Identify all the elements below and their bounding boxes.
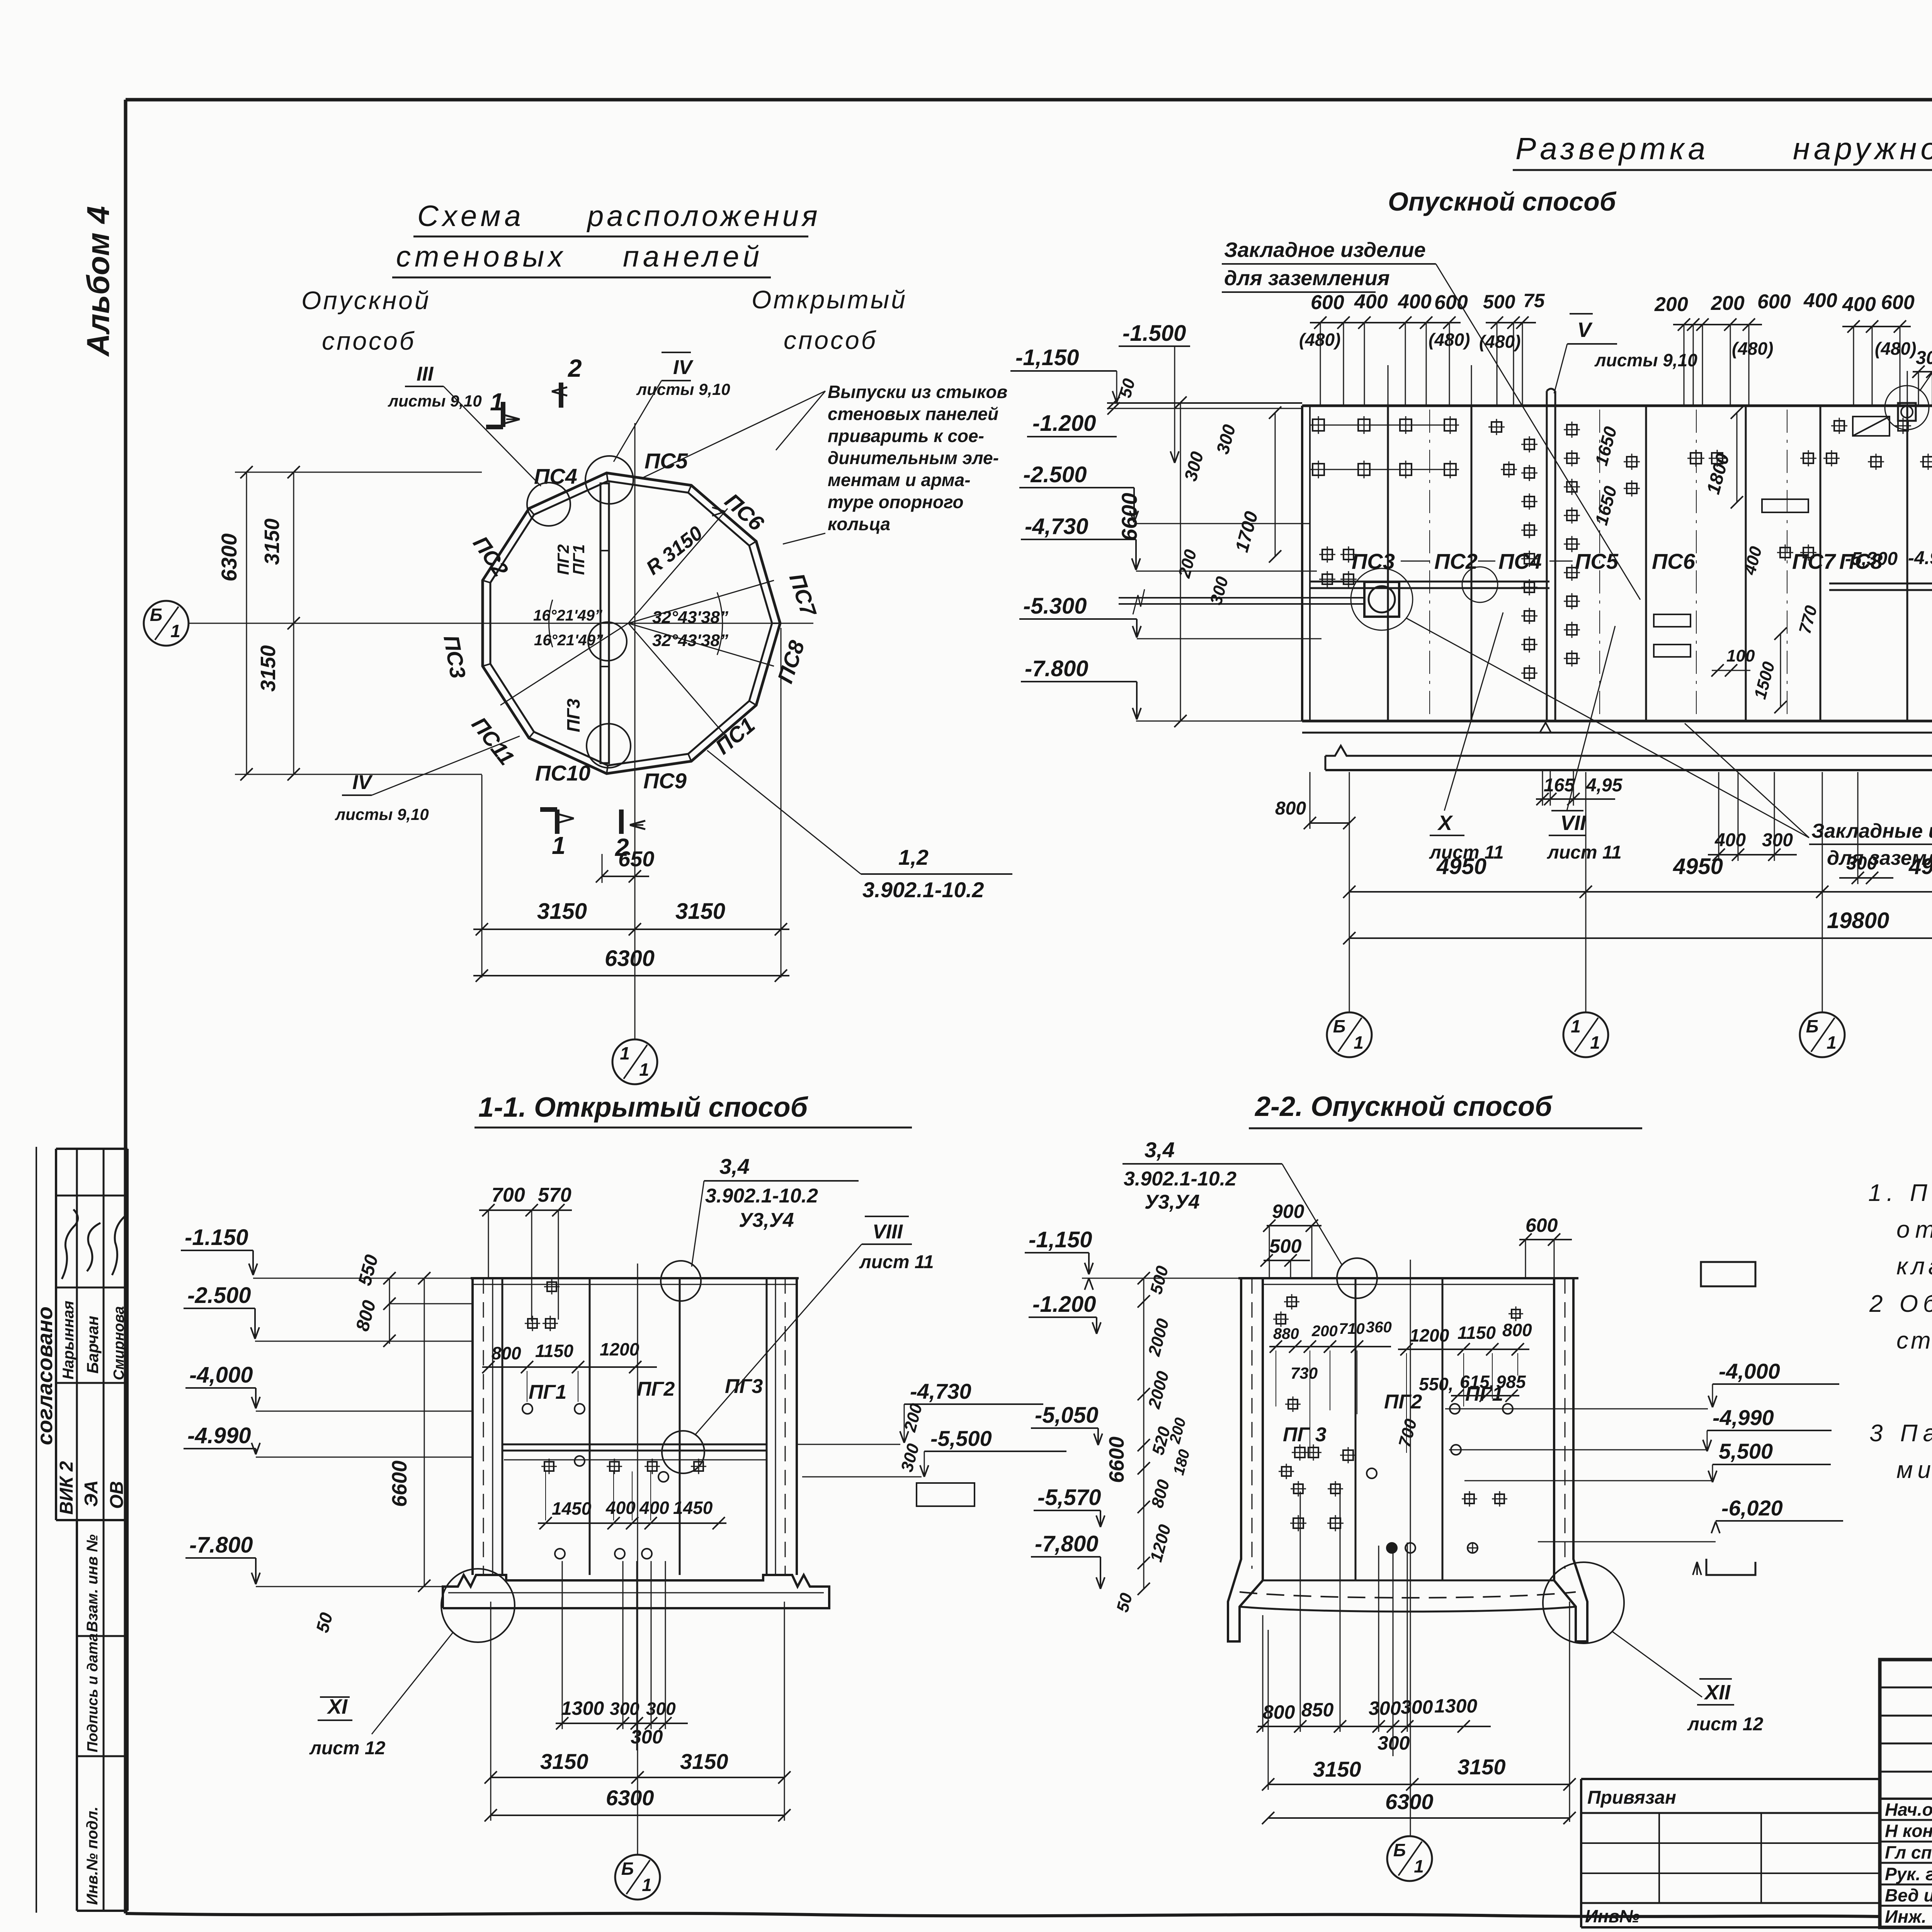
- svg-text:листы 9,10: листы 9,10: [335, 805, 429, 823]
- svg-text:лист 12: лист 12: [1687, 1714, 1764, 1735]
- svg-text:Взам. инв №: Взам. инв №: [84, 1534, 101, 1632]
- svg-text:листы 9,10: листы 9,10: [388, 392, 482, 410]
- svg-text:Закладное изделие: Закладное изделие: [1224, 238, 1426, 262]
- svg-text:400: 400: [639, 1498, 669, 1518]
- svg-text:3150: 3150: [675, 899, 725, 924]
- svg-text:6300: 6300: [217, 533, 241, 582]
- svg-text:(480): (480): [1732, 338, 1773, 359]
- svg-text:880: 880: [1273, 1325, 1299, 1342]
- svg-text:ментам и арма-: ментам и арма-: [828, 470, 971, 490]
- svg-text:800: 800: [492, 1343, 521, 1363]
- svg-text:Закладные изделия: Закладные изделия: [1811, 820, 1932, 842]
- svg-text:-4.900: -4.900: [1908, 548, 1932, 568]
- svg-text:1300: 1300: [561, 1697, 604, 1719]
- svg-text:200: 200: [1654, 293, 1688, 316]
- svg-text:985: 985: [1496, 1372, 1526, 1392]
- svg-text:1150: 1150: [1458, 1323, 1496, 1343]
- svg-text:кольца: кольца: [828, 514, 890, 534]
- svg-text:165: 165: [1544, 775, 1575, 796]
- svg-text:1,2: 1,2: [898, 845, 929, 869]
- svg-text:300: 300: [1916, 348, 1932, 368]
- svg-text:(480): (480): [1299, 330, 1340, 350]
- svg-text:ПС10: ПС10: [535, 761, 590, 785]
- svg-text:-1.150: -1.150: [185, 1225, 248, 1250]
- svg-text:75: 75: [1523, 290, 1545, 311]
- svg-text:X: X: [1437, 811, 1453, 835]
- svg-text:850: 850: [1301, 1699, 1334, 1721]
- svg-text:1: 1: [620, 1043, 630, 1063]
- svg-text:Вед инж: Вед инж: [1885, 1885, 1932, 1905]
- svg-text:динительным эле-: динительным эле-: [828, 448, 999, 468]
- svg-text:лист 11: лист 11: [1547, 842, 1622, 863]
- svg-text:-1,150: -1,150: [1015, 345, 1079, 370]
- svg-text:1: 1: [1827, 1032, 1837, 1053]
- svg-text:1300: 1300: [1434, 1695, 1477, 1717]
- svg-text:Гл спец: Гл спец: [1885, 1842, 1932, 1862]
- svg-text:XII: XII: [1704, 1681, 1731, 1704]
- svg-text:400: 400: [1354, 291, 1388, 313]
- svg-text:16°21'49”: 16°21'49”: [534, 632, 603, 649]
- svg-text:Б: Б: [1393, 1840, 1406, 1860]
- svg-text:3 Панели перегородочные обр: 3 Панели перегородочные обращены монтажн…: [1869, 1420, 1932, 1447]
- svg-text:-5.300: -5.300: [1023, 594, 1087, 619]
- svg-text:-4,000: -4,000: [1719, 1359, 1780, 1383]
- svg-text:1450: 1450: [673, 1498, 713, 1518]
- svg-text:Развертка: Развертка: [1515, 131, 1709, 166]
- svg-text:-4.990: -4.990: [187, 1423, 251, 1448]
- svg-text:Б: Б: [1333, 1016, 1346, 1036]
- svg-text:1: 1: [642, 1875, 652, 1895]
- svg-text:(480): (480): [1479, 332, 1520, 352]
- svg-text:1150: 1150: [535, 1341, 573, 1361]
- svg-text:4,95: 4,95: [1586, 775, 1623, 796]
- svg-text:400: 400: [1398, 291, 1432, 313]
- svg-text:1: 1: [1414, 1856, 1424, 1876]
- svg-text:Н контр: Н контр: [1885, 1821, 1932, 1841]
- svg-text:Схема: Схема: [417, 200, 525, 233]
- svg-text:3.902.1-10.2: 3.902.1-10.2: [705, 1185, 818, 1207]
- svg-text:Смирнова: Смирнова: [111, 1306, 127, 1380]
- svg-text:листы 9,10: листы 9,10: [636, 380, 730, 398]
- svg-text:900: 900: [1272, 1201, 1304, 1222]
- svg-text:-5,500: -5,500: [930, 1426, 992, 1451]
- svg-text:-5,570: -5,570: [1037, 1485, 1101, 1510]
- svg-text:-2.500: -2.500: [1023, 462, 1087, 487]
- svg-text:300: 300: [1369, 1697, 1401, 1719]
- svg-text:800: 800: [1275, 798, 1306, 819]
- svg-text:3150: 3150: [537, 899, 587, 924]
- svg-text:6300: 6300: [606, 1786, 654, 1810]
- svg-text:для заземления: для заземления: [1224, 267, 1390, 290]
- svg-text:способ: способ: [784, 326, 878, 354]
- svg-text:Б: Б: [621, 1859, 634, 1879]
- svg-text:600: 600: [1757, 291, 1791, 313]
- svg-text:-6,020: -6,020: [1721, 1496, 1783, 1520]
- svg-text:-7.800: -7.800: [189, 1532, 253, 1558]
- svg-text:-7.800: -7.800: [1025, 656, 1088, 681]
- svg-text:III: III: [417, 363, 434, 385]
- svg-text:650: 650: [618, 847, 654, 871]
- svg-text:Опускной: Опускной: [301, 286, 431, 315]
- svg-text:300: 300: [1378, 1732, 1410, 1754]
- svg-text:Инв№: Инв№: [1585, 1906, 1640, 1926]
- svg-text:6300: 6300: [605, 946, 655, 971]
- svg-text:ПГ2: ПГ2: [554, 544, 572, 575]
- svg-text:-4,990: -4,990: [1713, 1405, 1774, 1430]
- svg-text:600: 600: [1311, 291, 1344, 314]
- svg-text:-4,730: -4,730: [1025, 514, 1088, 539]
- svg-text:VII: VII: [1560, 811, 1586, 835]
- svg-text:-5,300: -5,300: [1845, 549, 1898, 569]
- svg-text:570: 570: [538, 1184, 571, 1206]
- svg-text:1: 1: [1354, 1032, 1364, 1053]
- svg-text:400: 400: [1803, 289, 1837, 312]
- svg-text:3,4: 3,4: [1145, 1138, 1175, 1162]
- svg-text:300: 300: [1762, 830, 1793, 850]
- svg-text:ЭА: ЭА: [81, 1480, 102, 1507]
- svg-text:XI: XI: [327, 1695, 348, 1718]
- svg-text:3.902.1-10.2: 3.902.1-10.2: [1124, 1168, 1236, 1190]
- svg-text:615,: 615,: [1460, 1372, 1495, 1392]
- svg-text:360: 360: [1366, 1319, 1392, 1336]
- svg-text:-1,150: -1,150: [1029, 1227, 1092, 1252]
- svg-text:1: 1: [639, 1060, 649, 1080]
- svg-text:200: 200: [1711, 292, 1745, 315]
- svg-text:класса В25 на мелком за: класса В25 на мелком заполнителе.: [1896, 1253, 1932, 1280]
- svg-text:ми петлями в сторону м: ми петлями в сторону машзала: [1896, 1457, 1932, 1483]
- svg-text:6600: 6600: [1117, 493, 1141, 541]
- svg-text:ПГ 3: ПГ 3: [1283, 1423, 1327, 1446]
- svg-text:-4,730: -4,730: [910, 1379, 971, 1403]
- svg-text:710: 710: [1339, 1320, 1365, 1337]
- svg-text:4950: 4950: [1436, 854, 1486, 879]
- svg-text:3150: 3150: [260, 519, 284, 565]
- svg-text:400: 400: [605, 1498, 636, 1518]
- svg-text:ПГ2: ПГ2: [1384, 1391, 1422, 1413]
- svg-text:ПГ2: ПГ2: [637, 1378, 675, 1400]
- svg-text:ПГ3: ПГ3: [563, 699, 583, 732]
- svg-text:4950: 4950: [1908, 854, 1932, 879]
- svg-text:стеновых панелей: стеновых панелей: [828, 404, 998, 424]
- svg-text:-1.500: -1.500: [1122, 321, 1186, 346]
- svg-text:Б: Б: [150, 605, 163, 625]
- svg-text:ПС4: ПС4: [1498, 549, 1542, 573]
- svg-text:16°21'49”: 16°21'49”: [533, 607, 602, 624]
- svg-text:VIII: VIII: [872, 1221, 903, 1243]
- svg-text:19800: 19800: [1827, 908, 1889, 933]
- svg-text:стеновых: стеновых: [396, 240, 566, 273]
- svg-text:800: 800: [1502, 1320, 1532, 1340]
- svg-text:2: 2: [568, 354, 582, 382]
- svg-text:500: 500: [1269, 1235, 1302, 1257]
- svg-text:32°43'38”: 32°43'38”: [652, 631, 728, 650]
- svg-text:1: 1: [552, 832, 566, 859]
- svg-text:Нач.отд.: Нач.отд.: [1885, 1799, 1932, 1820]
- svg-text:-5,050: -5,050: [1035, 1403, 1098, 1428]
- svg-text:Барчан: Барчан: [83, 1316, 102, 1374]
- svg-text:Привязан: Привязан: [1587, 1787, 1676, 1808]
- svg-text:наружной: наружной: [1793, 131, 1932, 166]
- svg-text:1-1. Открытый способ: 1-1. Открытый способ: [478, 1092, 809, 1123]
- svg-text:стыка.: стыка.: [1896, 1327, 1932, 1354]
- svg-text:-4,000: -4,000: [189, 1362, 253, 1388]
- svg-text:3.902.1-10.2: 3.902.1-10.2: [862, 878, 984, 902]
- svg-text:500: 500: [1483, 291, 1515, 313]
- svg-text:Инж.: Инж.: [1885, 1906, 1927, 1927]
- svg-text:300: 300: [610, 1699, 639, 1719]
- svg-text:панелей: панелей: [623, 240, 763, 273]
- svg-text:У3,У4: У3,У4: [1145, 1191, 1200, 1213]
- svg-text:приварить к сое-: приварить к сое-: [828, 426, 984, 446]
- svg-text:6600: 6600: [1105, 1437, 1128, 1483]
- svg-text:лист 12: лист 12: [309, 1738, 386, 1759]
- svg-text:Открытый: Открытый: [752, 285, 907, 314]
- svg-text:6600: 6600: [388, 1461, 411, 1507]
- svg-text:Нарынная: Нарынная: [60, 1301, 77, 1379]
- svg-text:-1.200: -1.200: [1032, 411, 1096, 436]
- svg-text:1: 1: [1571, 1016, 1581, 1036]
- svg-text:Подпись и дата: Подпись и дата: [85, 1633, 101, 1752]
- svg-text:отверстие в стене забетони: отверстие в стене забетонировать бетоном: [1896, 1216, 1932, 1243]
- svg-text:32°43'38”: 32°43'38”: [652, 608, 728, 627]
- svg-text:3150: 3150: [1458, 1755, 1506, 1779]
- svg-text:3150: 3150: [1313, 1757, 1361, 1781]
- svg-text:Альбом 4: Альбом 4: [81, 206, 116, 357]
- svg-text:300: 300: [1401, 1696, 1433, 1718]
- svg-text:4950: 4950: [1673, 854, 1723, 879]
- svg-text:-1.200: -1.200: [1032, 1292, 1096, 1317]
- svg-text:IV: IV: [673, 356, 694, 379]
- svg-text:1: 1: [170, 621, 180, 641]
- svg-text:100: 100: [1726, 646, 1755, 665]
- svg-text:туре опорного: туре опорного: [828, 492, 964, 512]
- svg-text:ОВ: ОВ: [107, 1481, 127, 1509]
- svg-text:3150: 3150: [680, 1749, 728, 1774]
- svg-text:550,: 550,: [1419, 1374, 1454, 1394]
- svg-text:2 Обозначения в скобках дан: 2 Обозначения в скобках даны для клинови…: [1869, 1291, 1932, 1317]
- svg-text:6300: 6300: [1385, 1789, 1434, 1814]
- svg-text:Инв.№ подл.: Инв.№ подл.: [84, 1806, 101, 1905]
- svg-text:согласовано: согласовано: [32, 1306, 57, 1445]
- svg-text:Опускной способ: Опускной способ: [1388, 187, 1617, 216]
- svg-text:3,4: 3,4: [719, 1154, 750, 1179]
- svg-text:1200: 1200: [600, 1339, 639, 1359]
- svg-text:600: 600: [1881, 291, 1915, 314]
- svg-text:600: 600: [1526, 1214, 1558, 1236]
- svg-text:730: 730: [1291, 1364, 1318, 1382]
- svg-text:1200: 1200: [1410, 1325, 1449, 1345]
- svg-text:расположения: расположения: [587, 200, 821, 233]
- svg-text:-7,800: -7,800: [1035, 1531, 1098, 1556]
- svg-text:ПС5: ПС5: [645, 449, 688, 473]
- svg-text:ПГ1: ПГ1: [529, 1381, 566, 1403]
- svg-text:Выпуски из стыков: Выпуски из стыков: [828, 382, 1007, 402]
- svg-text:(480): (480): [1875, 338, 1916, 359]
- svg-text:2-2. Опускной способ: 2-2. Опускной способ: [1254, 1091, 1553, 1122]
- svg-text:ВИК 2: ВИК 2: [56, 1461, 77, 1515]
- svg-text:1: 1: [1590, 1032, 1600, 1053]
- svg-text:300: 300: [631, 1726, 663, 1748]
- svg-text:-2.500: -2.500: [187, 1283, 251, 1308]
- svg-text:способ: способ: [322, 327, 416, 355]
- svg-text:Б: Б: [1806, 1016, 1819, 1036]
- svg-text:1. После монтажа сальни: 1. После монтажа сальников и приварки ст…: [1868, 1180, 1932, 1206]
- svg-text:3150: 3150: [540, 1749, 588, 1774]
- svg-text:лист 11: лист 11: [859, 1252, 934, 1272]
- svg-text:5,500: 5,500: [1719, 1439, 1773, 1463]
- svg-text:200: 200: [1311, 1323, 1338, 1340]
- svg-text:Рук. гр.: Рук. гр.: [1885, 1864, 1932, 1884]
- svg-text:400: 400: [1842, 293, 1876, 316]
- svg-text:ПС9: ПС9: [643, 769, 687, 793]
- svg-text:1450: 1450: [552, 1498, 592, 1519]
- svg-text:У3,У4: У3,У4: [739, 1209, 794, 1231]
- svg-text:3150: 3150: [257, 645, 280, 692]
- svg-text:(480): (480): [1429, 330, 1470, 350]
- svg-text:700: 700: [492, 1184, 525, 1206]
- svg-text:ПС6: ПС6: [1652, 549, 1696, 573]
- svg-text:600: 600: [1434, 291, 1468, 314]
- svg-text:V: V: [1577, 318, 1593, 342]
- svg-text:ПГ1: ПГ1: [570, 544, 588, 575]
- svg-text:листы 9,10: листы 9,10: [1594, 350, 1697, 370]
